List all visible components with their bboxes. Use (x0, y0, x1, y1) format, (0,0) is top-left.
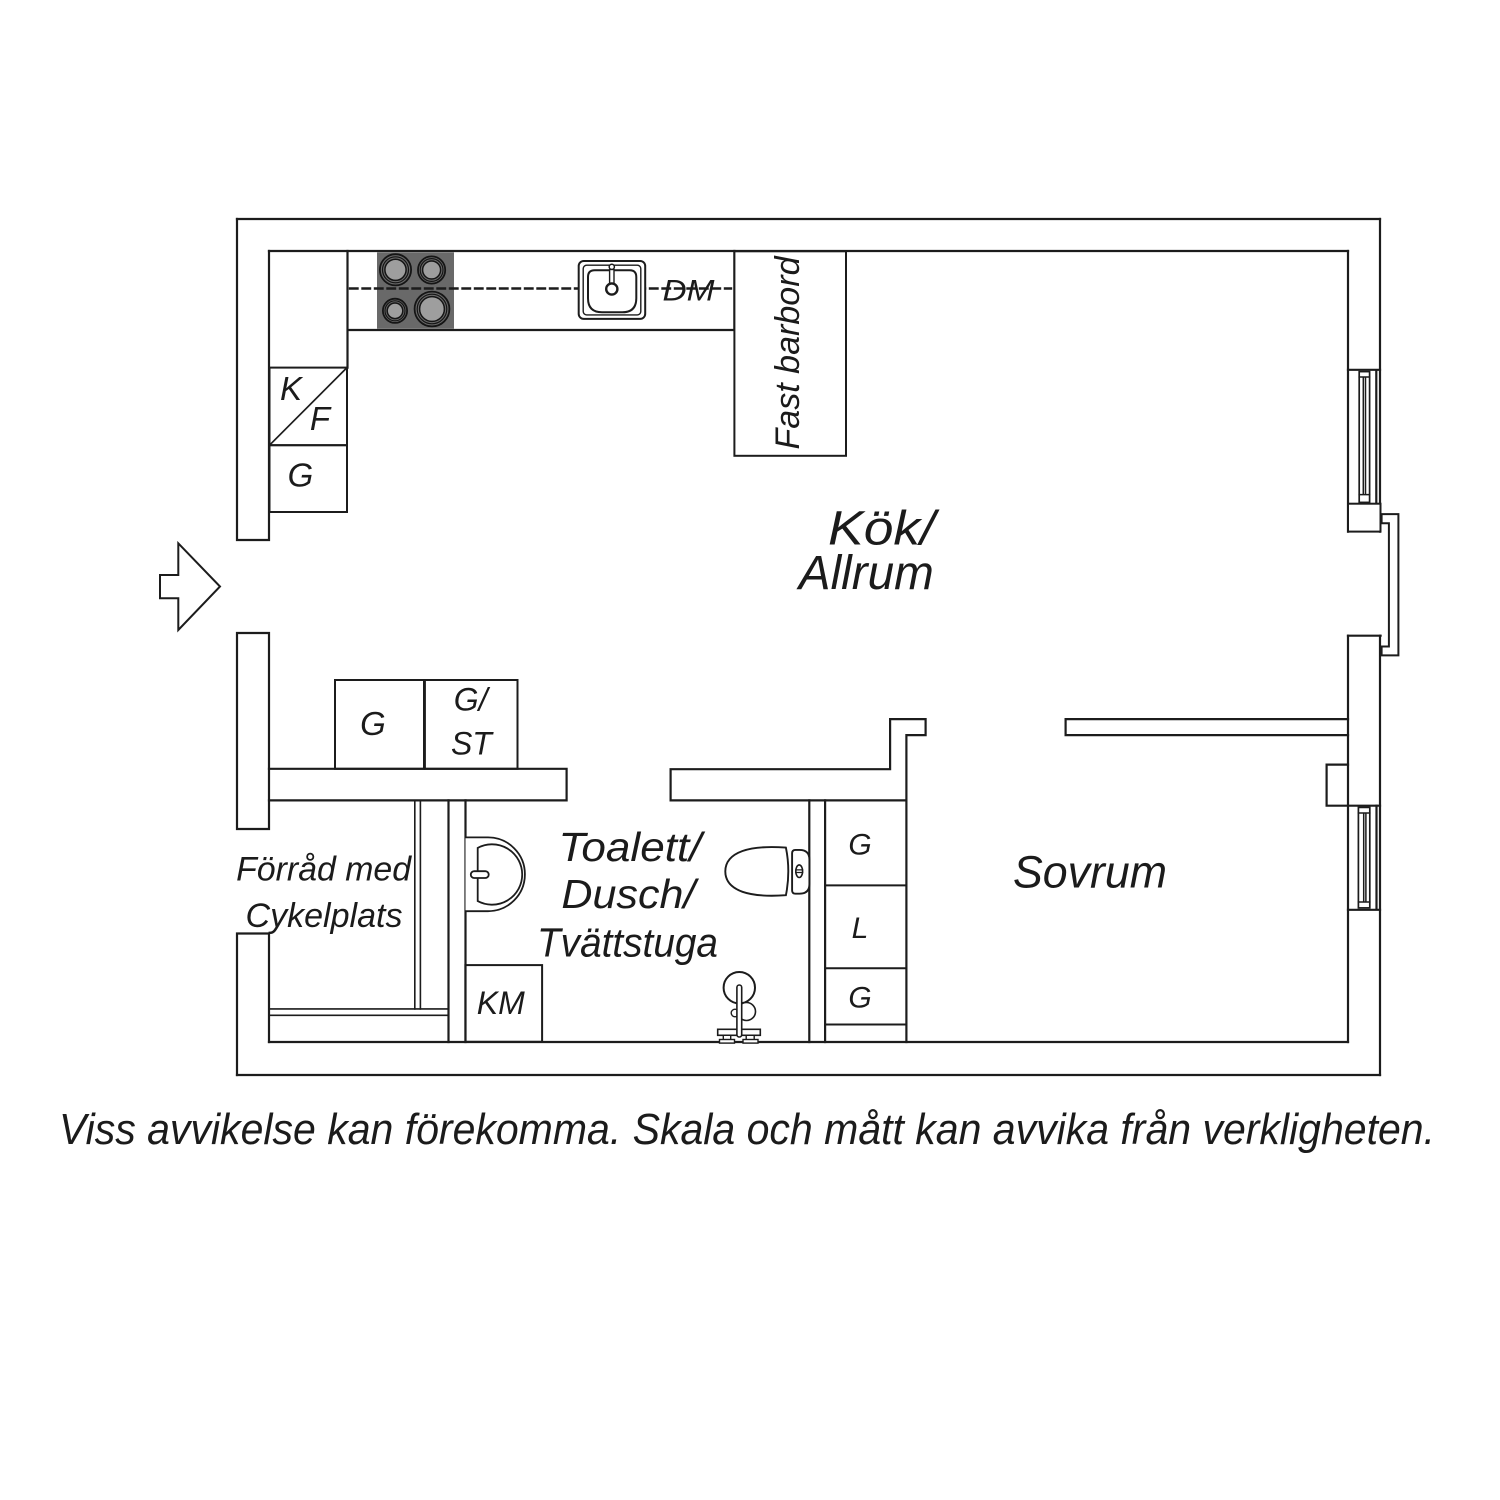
svg-text:Dusch/: Dusch/ (561, 871, 699, 917)
svg-text:L: L (852, 912, 869, 945)
svg-text:Allrum: Allrum (796, 547, 934, 600)
svg-text:G: G (360, 705, 386, 742)
svg-text:G: G (288, 457, 314, 494)
svg-text:Cykelplats: Cykelplats (246, 897, 403, 935)
svg-text:K: K (280, 370, 304, 407)
svg-text:Förråd med: Förråd med (236, 851, 412, 889)
svg-text:G: G (848, 828, 871, 861)
svg-text:KM: KM (477, 985, 525, 1021)
svg-text:DM: DM (663, 275, 715, 308)
svg-text:Sovrum: Sovrum (1013, 847, 1167, 898)
svg-text:Fast barbord: Fast barbord (769, 255, 807, 449)
svg-text:ST: ST (451, 726, 494, 762)
svg-text:Toalett/: Toalett/ (559, 824, 706, 870)
svg-text:Tvättstuga: Tvättstuga (537, 920, 718, 966)
svg-text:G/: G/ (454, 682, 491, 718)
svg-text:Viss avvikelse kan förekomma.: Viss avvikelse kan förekomma. Skala och … (59, 1105, 1435, 1154)
svg-text:G: G (848, 982, 871, 1015)
svg-text:F: F (310, 400, 332, 437)
